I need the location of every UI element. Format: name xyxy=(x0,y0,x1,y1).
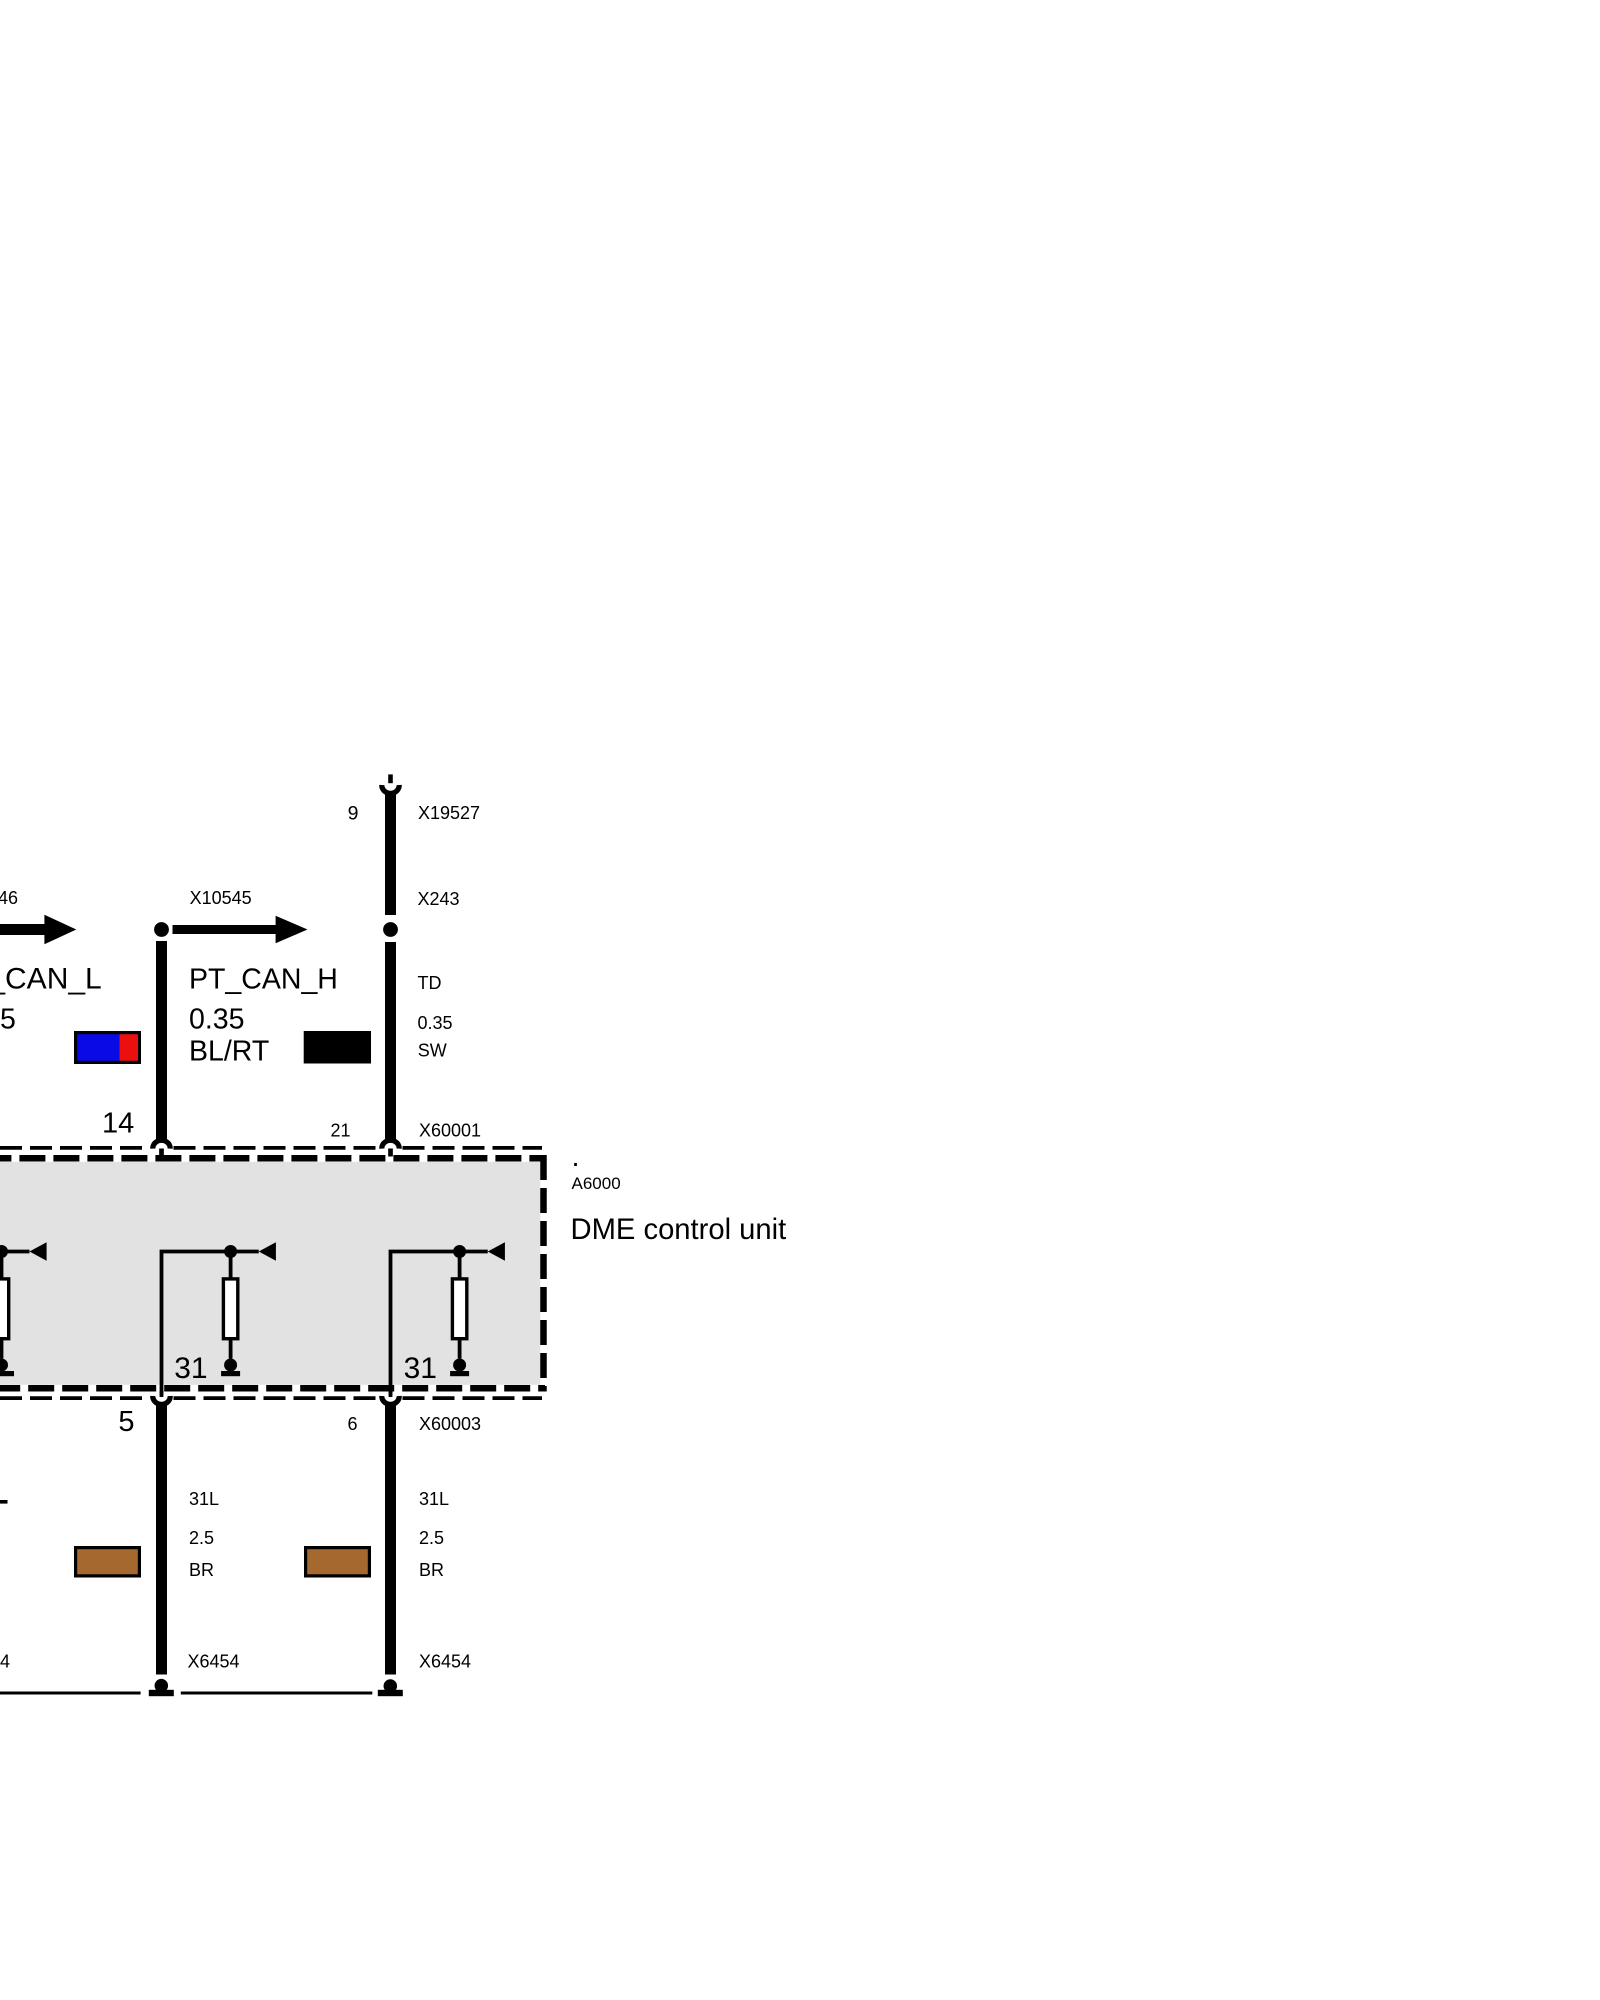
svg-text:31L: 31L xyxy=(189,1489,219,1509)
svg-text:BR: BR xyxy=(419,1560,444,1580)
svg-text:PT_CAN_H: PT_CAN_H xyxy=(189,964,338,996)
svg-text:X243: X243 xyxy=(418,889,460,909)
svg-text:2.5: 2.5 xyxy=(419,1528,444,1548)
svg-text:31: 31 xyxy=(174,1352,207,1385)
svg-text:X6454: X6454 xyxy=(188,1652,240,1672)
svg-text:X6454: X6454 xyxy=(419,1652,471,1672)
svg-text:X6454: X6454 xyxy=(0,1652,10,1672)
svg-text:0.35: 0.35 xyxy=(0,1004,16,1036)
svg-text:9: 9 xyxy=(348,803,359,825)
svg-text:6: 6 xyxy=(347,1414,357,1434)
svg-text:31: 31 xyxy=(404,1352,437,1385)
svg-text:TD: TD xyxy=(418,973,442,993)
svg-text:0.35: 0.35 xyxy=(418,1013,453,1033)
svg-text:BR: BR xyxy=(189,1560,214,1580)
svg-text:21: 21 xyxy=(330,1121,350,1141)
svg-text:X60003: X60003 xyxy=(419,1414,481,1434)
svg-text:.: . xyxy=(572,1141,580,1173)
svg-text:PT_CAN_L: PT_CAN_L xyxy=(0,963,102,996)
svg-text:A6000: A6000 xyxy=(572,1174,621,1193)
svg-text:14: 14 xyxy=(102,1108,134,1140)
svg-text:X10545: X10545 xyxy=(190,888,252,908)
svg-text:31L: 31L xyxy=(419,1489,449,1509)
svg-text:5: 5 xyxy=(118,1406,134,1438)
svg-text:46: 46 xyxy=(0,888,18,908)
svg-text:0.35: 0.35 xyxy=(189,1004,244,1036)
svg-text:X60001: X60001 xyxy=(419,1121,481,1141)
svg-text:X19527: X19527 xyxy=(418,803,480,823)
svg-text:DME control unit: DME control unit xyxy=(571,1214,787,1246)
svg-text:SW: SW xyxy=(418,1041,447,1061)
svg-text:2.5: 2.5 xyxy=(189,1528,214,1548)
svg-text:BL/RT: BL/RT xyxy=(189,1036,269,1068)
